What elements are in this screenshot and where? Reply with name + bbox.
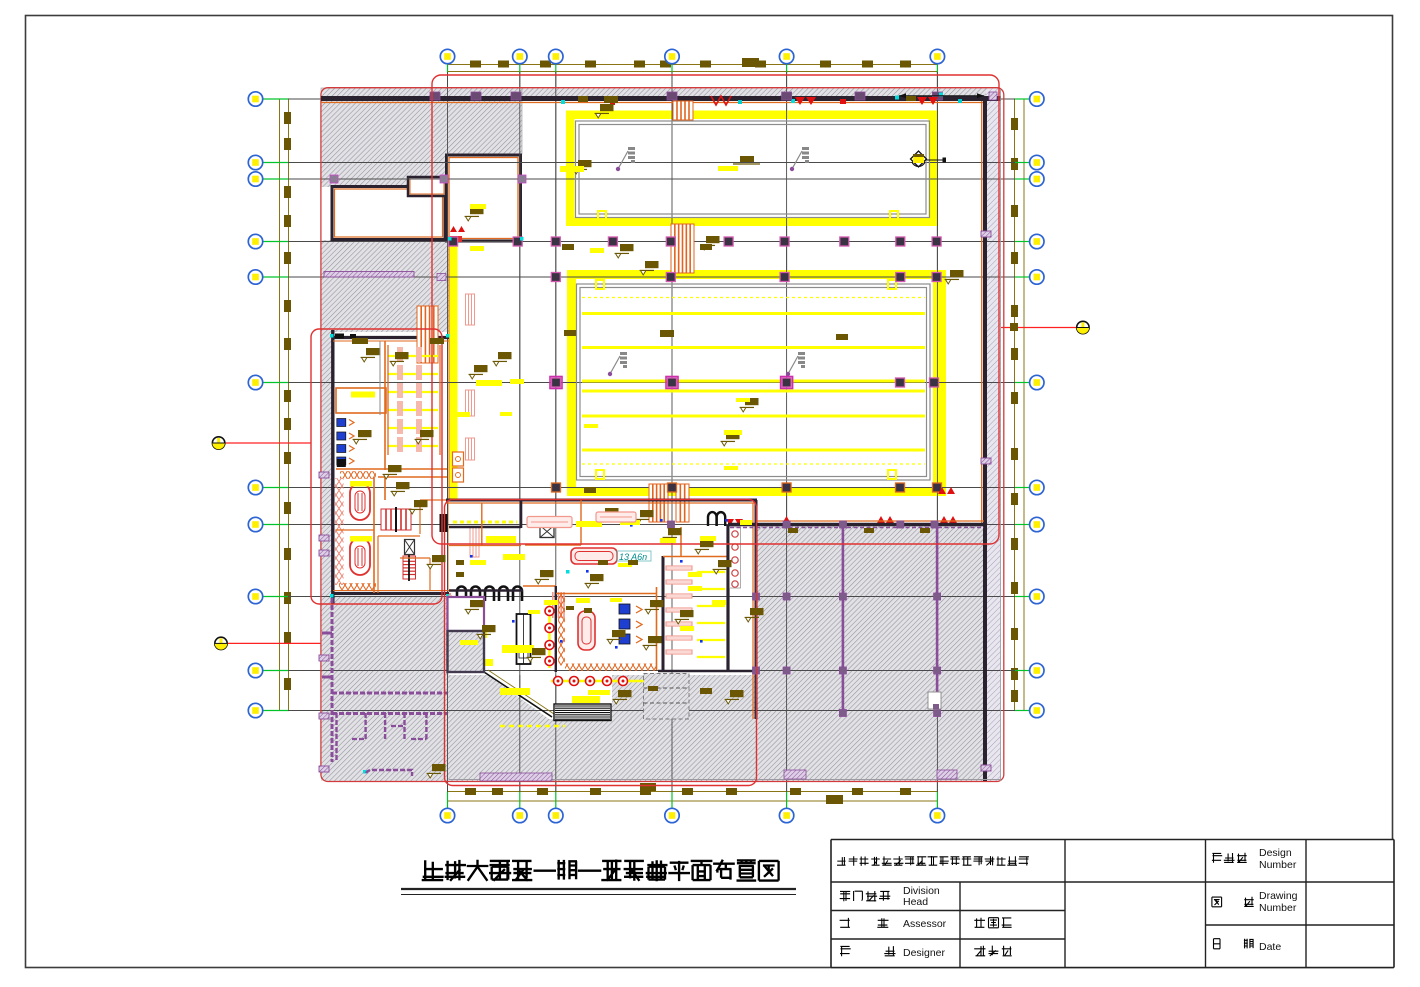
svg-text:Designer: Designer bbox=[903, 947, 946, 959]
svg-text:Drawing: Drawing bbox=[1259, 890, 1298, 902]
svg-text:Design: Design bbox=[1259, 847, 1292, 859]
svg-text:Head: Head bbox=[903, 896, 928, 908]
svg-text:Assessor: Assessor bbox=[903, 918, 947, 930]
svg-text:Number: Number bbox=[1259, 859, 1297, 871]
svg-text:Date: Date bbox=[1259, 941, 1281, 953]
svg-text:Number: Number bbox=[1259, 902, 1297, 914]
